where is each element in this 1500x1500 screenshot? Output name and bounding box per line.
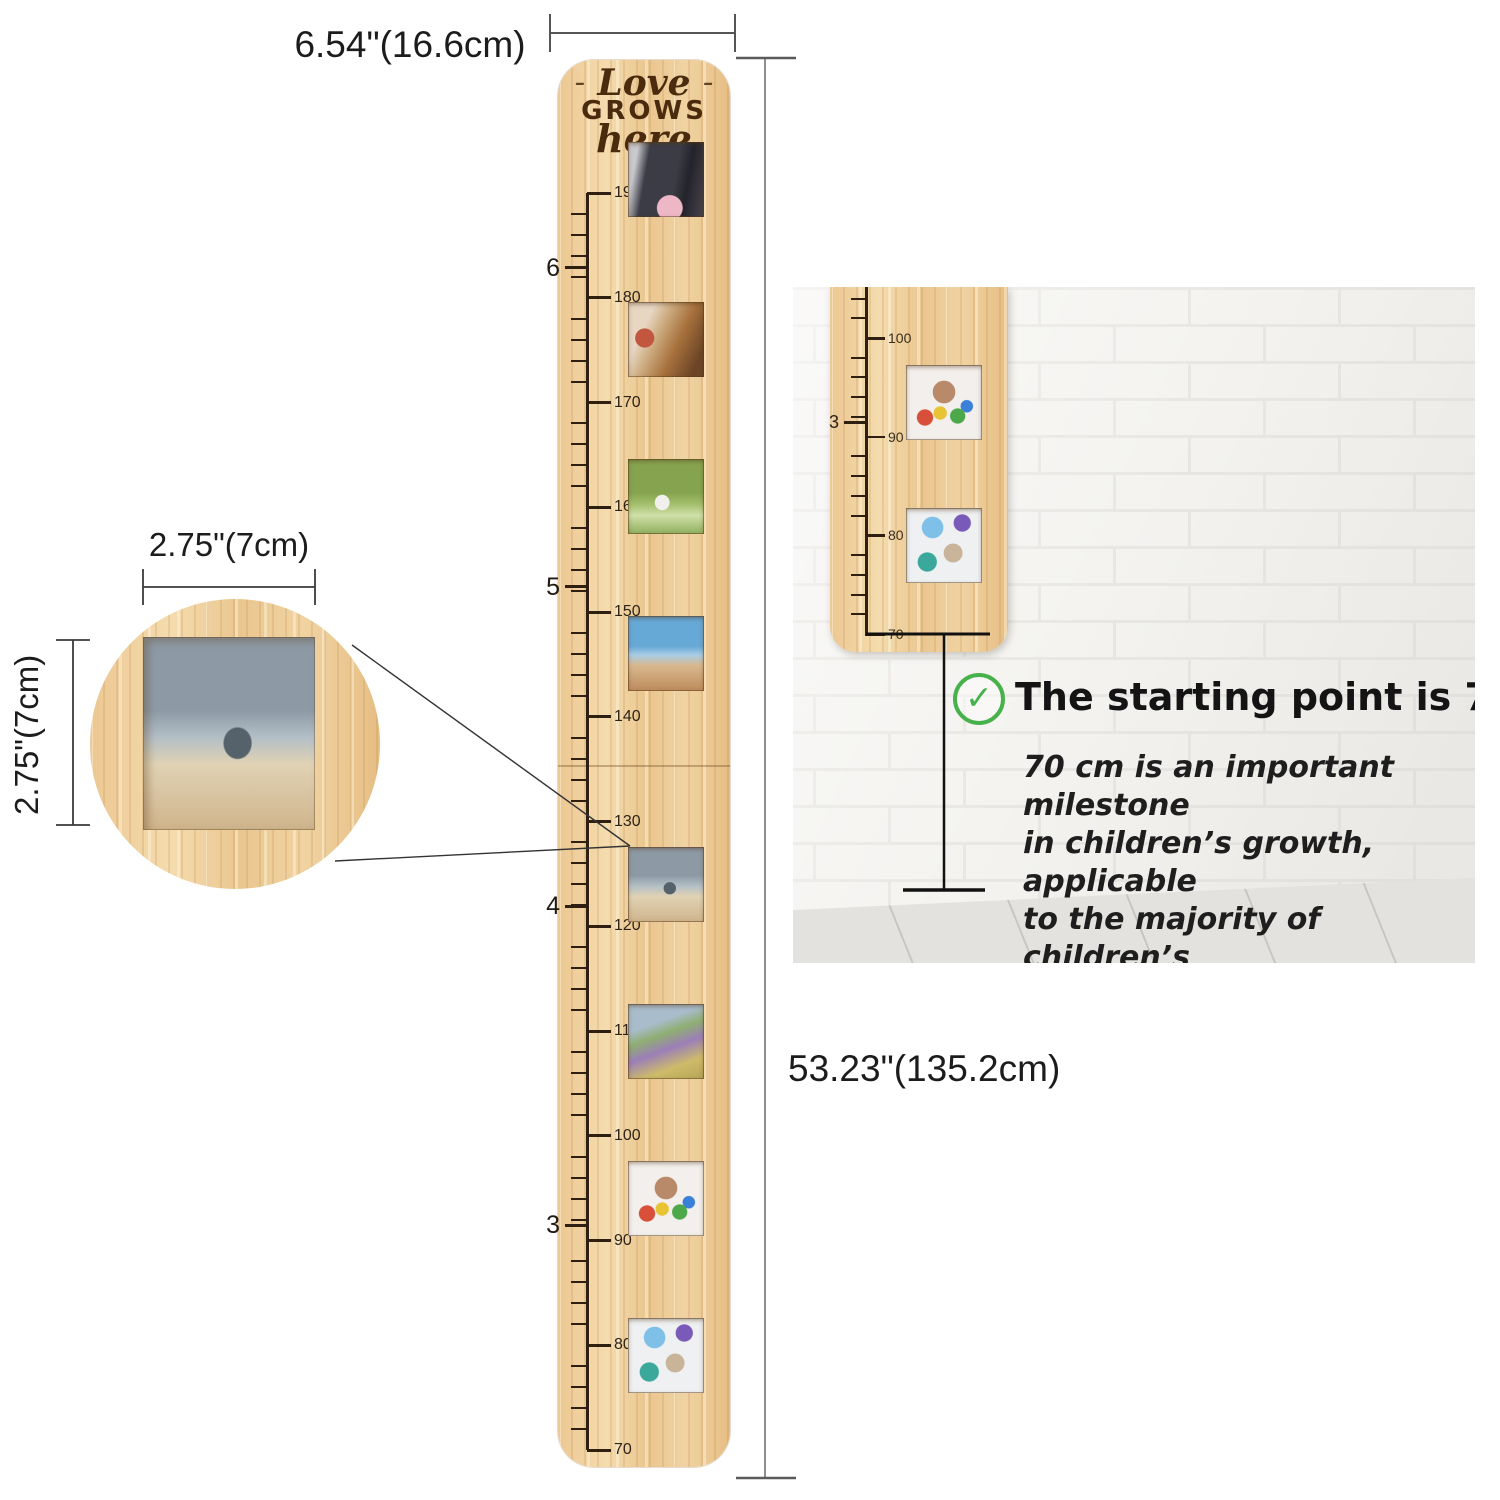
engraving-decor-right: – (703, 70, 713, 94)
minor-tick (571, 548, 587, 550)
major-tick (865, 534, 885, 537)
panel-headline: The starting point is 70 cm. (1015, 675, 1475, 719)
minor-tick (851, 357, 865, 359)
minor-tick (571, 1365, 587, 1367)
walk-to-school-photo (628, 1004, 704, 1079)
cm-label-140: 140 (614, 708, 641, 726)
minor-tick (571, 527, 587, 529)
minor-tick (571, 1177, 587, 1179)
minor-tick (571, 1407, 587, 1409)
major-tick (587, 296, 611, 299)
minor-tick (851, 574, 865, 576)
school-girl-photo (628, 847, 704, 922)
inset-height-dimension (56, 640, 90, 825)
panel-cm-label-70: 70 (888, 626, 904, 642)
photo-frame-inset (90, 599, 380, 889)
minor-tick (571, 443, 587, 445)
panel-cm-label-100: 100 (888, 330, 911, 346)
major-tick (587, 715, 611, 718)
major-tick (865, 337, 885, 340)
major-tick (587, 506, 611, 509)
major-tick (865, 436, 885, 439)
major-tick (587, 192, 611, 195)
minor-tick (571, 841, 587, 843)
minor-tick (571, 1072, 587, 1074)
feet-tick (565, 585, 587, 588)
minor-tick (571, 1302, 587, 1304)
product-infographic: 6.54"(16.6cm) 53.23"(135.2cm) 2.75"(7cm)… (0, 0, 1500, 1500)
marathon-runner-photo (628, 459, 704, 534)
minor-tick (571, 1219, 587, 1221)
minor-tick (851, 554, 865, 556)
minor-tick (571, 1386, 587, 1388)
minor-tick (851, 594, 865, 596)
minor-tick (571, 695, 587, 697)
feet-label-5: 5 (534, 573, 560, 602)
minor-tick (571, 339, 587, 341)
total-height-dimension (736, 58, 796, 1478)
minor-tick (851, 475, 865, 477)
major-tick (587, 401, 611, 404)
travel-photo (628, 616, 704, 691)
minor-tick (851, 396, 865, 398)
cm-label-130: 130 (614, 813, 641, 831)
minor-tick (571, 758, 587, 760)
wall-scene-panel: 1009080703 ✓ The starting point is 70 cm… (793, 287, 1475, 963)
minor-tick (571, 485, 587, 487)
minor-tick (851, 515, 865, 517)
minor-tick (571, 213, 587, 215)
cm-label-70: 70 (614, 1441, 632, 1459)
minor-tick (571, 779, 587, 781)
minor-tick (851, 495, 865, 497)
feet-tick (565, 266, 587, 269)
birthday-candles-photo (628, 302, 704, 377)
minor-tick (851, 317, 865, 319)
minor-tick (851, 416, 865, 418)
minor-tick (571, 1260, 587, 1262)
feet-label-6: 6 (534, 254, 560, 283)
minor-tick (571, 1093, 587, 1095)
major-tick (587, 1030, 611, 1033)
check-icon: ✓ (953, 673, 1005, 725)
panel-cm-label-80: 80 (888, 527, 904, 543)
minor-tick (571, 234, 587, 236)
panel-body-line: to the majority of children’s (1023, 901, 1475, 963)
minor-tick (571, 862, 587, 864)
minor-tick (571, 800, 587, 802)
minor-tick (571, 988, 587, 990)
board-joint-seam (558, 765, 730, 767)
minor-tick (571, 590, 587, 592)
minor-tick (571, 1114, 587, 1116)
major-tick (865, 633, 885, 636)
feet-tick (844, 421, 865, 424)
minor-tick (571, 1198, 587, 1200)
painted-hands-photo (628, 1161, 704, 1236)
minor-tick (571, 1323, 587, 1325)
top-width-label: 6.54"(16.6cm) (285, 24, 535, 66)
minor-tick (571, 422, 587, 424)
graduation-photo (628, 142, 704, 217)
growth-chart-board (558, 60, 730, 1467)
minor-tick (571, 318, 587, 320)
minor-tick (571, 737, 587, 739)
minor-tick (571, 1428, 587, 1430)
cm-label-100: 100 (614, 1127, 641, 1145)
minor-tick (571, 946, 587, 948)
minor-tick (571, 632, 587, 634)
feet-label-4: 4 (534, 892, 560, 921)
minor-tick (851, 613, 865, 615)
minor-tick (851, 376, 865, 378)
engraving-decor-left: – (575, 70, 585, 94)
baby-birthday-photo (628, 1318, 704, 1393)
minor-tick (571, 1156, 587, 1158)
major-tick (587, 820, 611, 823)
minor-tick (571, 883, 587, 885)
minor-tick (571, 1051, 587, 1053)
top-width-dimension (550, 14, 735, 52)
minor-tick (571, 276, 587, 278)
major-tick (587, 611, 611, 614)
minor-tick (571, 1281, 587, 1283)
inset-width-label: 2.75"(7cm) (139, 526, 319, 564)
panel-body-line: 70 cm is an important milestone (1023, 749, 1475, 825)
minor-tick (571, 653, 587, 655)
inset-school-girl-photo (143, 637, 315, 830)
panel-cm-label-90: 90 (888, 429, 904, 445)
inset-height-label: 2.75"(7cm) (8, 637, 46, 833)
minor-tick (851, 298, 865, 300)
minor-tick (571, 569, 587, 571)
major-tick (587, 1239, 611, 1242)
growth-chart-board-bottom (830, 287, 1008, 652)
minor-tick (571, 360, 587, 362)
feet-tick (565, 905, 587, 908)
major-tick (587, 1344, 611, 1347)
major-tick (587, 925, 611, 928)
panel-body-line: in children’s growth, applicable (1023, 825, 1475, 901)
minor-tick (571, 381, 587, 383)
panel-feet-label-3: 3 (819, 412, 839, 433)
feet-tick (565, 1224, 587, 1227)
panel-body-text: 70 cm is an important milestonein childr… (1023, 749, 1475, 963)
major-tick (587, 1134, 611, 1137)
minor-tick (571, 674, 587, 676)
minor-tick (571, 967, 587, 969)
panel-painted-hands-photo (906, 365, 982, 440)
panel-baby-birthday-photo (906, 508, 982, 583)
feet-label-3: 3 (534, 1211, 560, 1240)
minor-tick (571, 464, 587, 466)
minor-tick (851, 455, 865, 457)
major-tick (587, 1449, 611, 1452)
cm-label-170: 170 (614, 394, 641, 412)
total-height-label: 53.23"(135.2cm) (788, 1048, 1060, 1090)
minor-tick (571, 1009, 587, 1011)
minor-tick (571, 255, 587, 257)
